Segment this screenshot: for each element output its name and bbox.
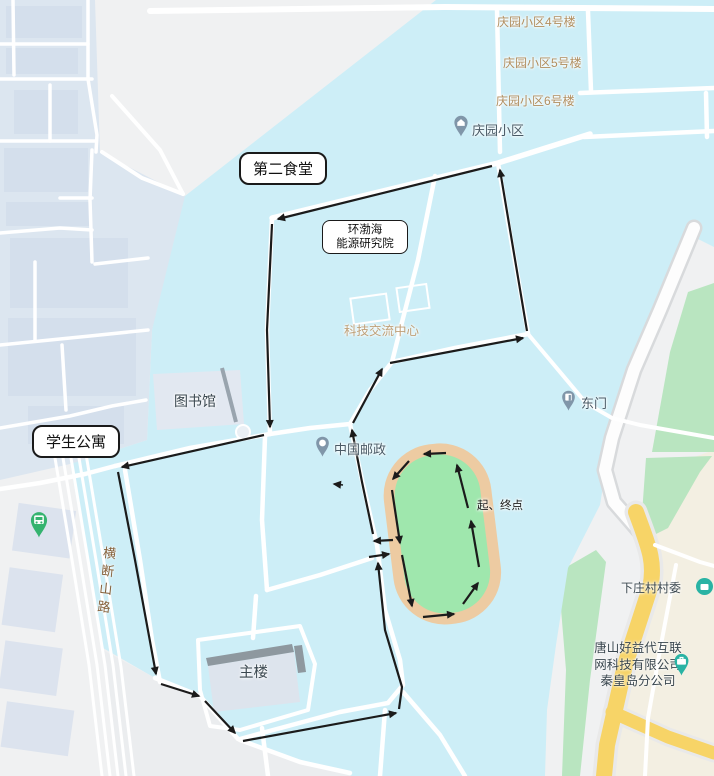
village-committee-icon[interactable]: [696, 578, 713, 595]
annotation-dorm: 学生公寓: [32, 425, 120, 458]
label-china-post[interactable]: 中国邮政: [334, 439, 386, 458]
institute-line1: 环渤海: [331, 223, 399, 237]
label-qingyuan[interactable]: 庆园小区: [472, 120, 524, 139]
annotation-canteen2: 第二食堂: [239, 152, 327, 185]
institute-line2: 能源研究院: [331, 237, 399, 251]
label-village[interactable]: 下庄村村委: [621, 579, 681, 596]
label-east-gate[interactable]: 东门: [581, 393, 607, 412]
qingyuan-house-pin[interactable]: [452, 114, 470, 142]
bus-stop-pin[interactable]: [28, 510, 50, 543]
label-qingyuan-bldg4: 庆园小区4号楼: [497, 13, 576, 30]
china-post-pin[interactable]: [314, 435, 331, 462]
company-pin[interactable]: [672, 652, 691, 681]
label-start-finish: 起、终点: [477, 497, 523, 513]
label-qingyuan-bldg6: 庆园小区6号楼: [496, 92, 575, 109]
label-library[interactable]: 图书馆: [174, 391, 216, 411]
annotation-institute: 环渤海 能源研究院: [322, 220, 408, 254]
campus-map: 庆园小区4号楼 庆园小区5号楼 庆园小区6号楼 庆园小区 第二食堂 环渤海 能源…: [0, 0, 714, 776]
label-qingyuan-bldg5: 庆园小区5号楼: [503, 54, 582, 71]
label-main-building[interactable]: 主楼: [239, 661, 268, 682]
label-sci-center[interactable]: 科技交流中心: [344, 320, 419, 339]
east-gate-pin[interactable]: [560, 389, 577, 416]
